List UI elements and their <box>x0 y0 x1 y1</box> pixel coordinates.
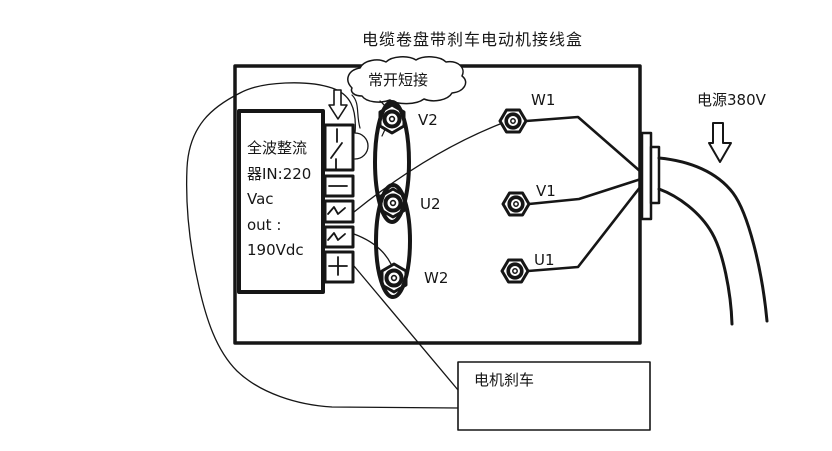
terminal-label-u2: U2 <box>420 195 441 213</box>
terminal-nut-u1 <box>502 260 528 282</box>
right-terminal-nuts <box>500 110 529 282</box>
terminal-label-v2: V2 <box>418 111 438 129</box>
terminal-label-w1: W1 <box>531 91 555 109</box>
power-source-label: 电源380V <box>697 89 766 110</box>
wiring-diagram: 电缆卷盘带刹车电动机接线盒 常开短接 全波整流 器IN:220 Vac out … <box>0 0 832 451</box>
power-cable-line <box>659 189 732 324</box>
power-arrow-down-icon <box>709 123 731 162</box>
cloud-tail <box>352 95 360 128</box>
rectifier-label: 全波整流 器IN:220 Vac out : 190Vdc <box>247 136 321 264</box>
terminal-strip-segment-ac2 <box>325 227 353 247</box>
terminal-label-u1: U1 <box>534 251 555 269</box>
cloud-note-label: 常开短接 <box>368 69 428 90</box>
terminal-nut-v1 <box>503 193 529 215</box>
motor-brake-label: 电机刹车 <box>474 369 534 390</box>
terminal-label-v1: V1 <box>536 182 556 200</box>
wire-ac2-to-w2 <box>354 234 391 264</box>
terminal-strip-segment-plus <box>325 252 353 282</box>
terminal-label-w2: W2 <box>424 269 448 287</box>
wire-w1-to-gland <box>526 117 641 172</box>
power-cable-line <box>659 158 767 321</box>
terminal-nut-w1 <box>500 110 526 132</box>
diagram-title: 电缆卷盘带刹车电动机接线盒 <box>362 26 583 50</box>
diagram-lineart <box>0 0 832 451</box>
cable-gland <box>642 133 659 219</box>
